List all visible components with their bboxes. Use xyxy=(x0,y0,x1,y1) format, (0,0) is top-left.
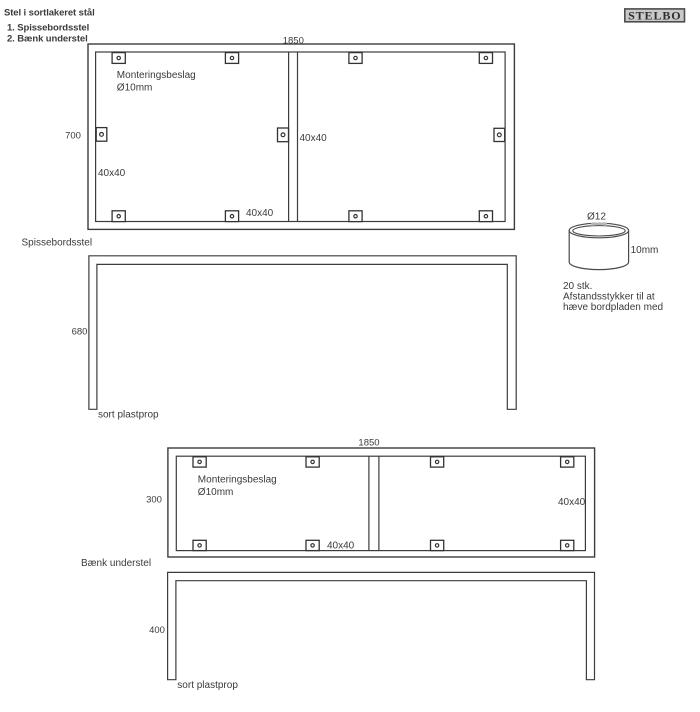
svg-text:STELBO: STELBO xyxy=(628,8,681,22)
svg-text:2. Bænk understel: 2. Bænk understel xyxy=(7,34,88,45)
svg-text:Ø10mm: Ø10mm xyxy=(198,487,234,498)
svg-text:1850: 1850 xyxy=(358,438,379,449)
svg-text:sort plastprop: sort plastprop xyxy=(177,680,238,691)
svg-text:700: 700 xyxy=(65,131,81,142)
svg-text:sort plastprop: sort plastprop xyxy=(98,409,159,420)
svg-text:Monteringsbeslag: Monteringsbeslag xyxy=(198,474,277,485)
svg-text:1850: 1850 xyxy=(283,35,304,46)
svg-text:1. Spissebordsstel: 1. Spissebordsstel xyxy=(7,23,89,34)
svg-text:40x40: 40x40 xyxy=(300,133,328,144)
svg-text:20 stk.: 20 stk. xyxy=(563,281,592,292)
svg-text:40x40: 40x40 xyxy=(327,541,355,552)
svg-text:Ø12: Ø12 xyxy=(587,211,606,222)
svg-text:Afstandsstykker til at: Afstandsstykker til at xyxy=(563,292,655,303)
svg-text:680: 680 xyxy=(72,326,88,337)
svg-text:hæve bordpladen med: hæve bordpladen med xyxy=(563,302,663,313)
svg-text:10mm: 10mm xyxy=(631,245,659,256)
svg-text:40x40: 40x40 xyxy=(246,208,274,219)
svg-text:Spissebordsstel: Spissebordsstel xyxy=(22,237,93,248)
svg-text:Bænk understel: Bænk understel xyxy=(81,558,151,569)
svg-text:400: 400 xyxy=(149,625,165,636)
svg-text:40x40: 40x40 xyxy=(98,168,126,179)
svg-text:300: 300 xyxy=(146,495,162,506)
svg-text:Ø10mm: Ø10mm xyxy=(117,82,153,93)
svg-text:Stel i sortlakeret stål: Stel i sortlakeret stål xyxy=(4,8,95,19)
svg-text:Monteringsbeslag: Monteringsbeslag xyxy=(117,70,196,81)
svg-text:40x40: 40x40 xyxy=(558,497,586,508)
